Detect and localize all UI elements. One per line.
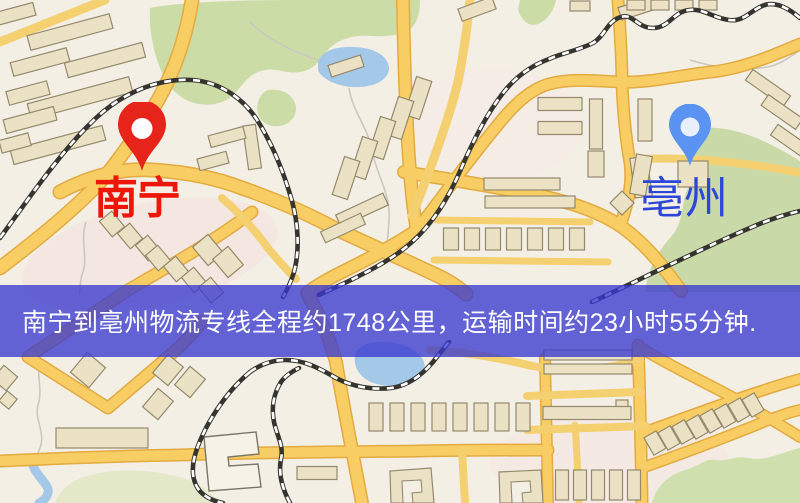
map-background — [0, 0, 800, 503]
origin-label: 南宁 — [94, 177, 180, 221]
destination-label: 亳州 — [640, 177, 728, 221]
red-map-pin-icon — [116, 102, 168, 172]
route-info-text: 南宁到亳州物流专线全程约1748公里，运输时间约23小时55分钟. — [22, 303, 757, 339]
map-canvas: 南宁 亳州 南宁到亳州物流专线全程约1748公里，运输时间约23小时55分钟. — [0, 0, 800, 503]
route-info-banner: 南宁到亳州物流专线全程约1748公里，运输时间约23小时55分钟. — [0, 285, 800, 357]
blue-map-pin-icon — [667, 104, 713, 167]
